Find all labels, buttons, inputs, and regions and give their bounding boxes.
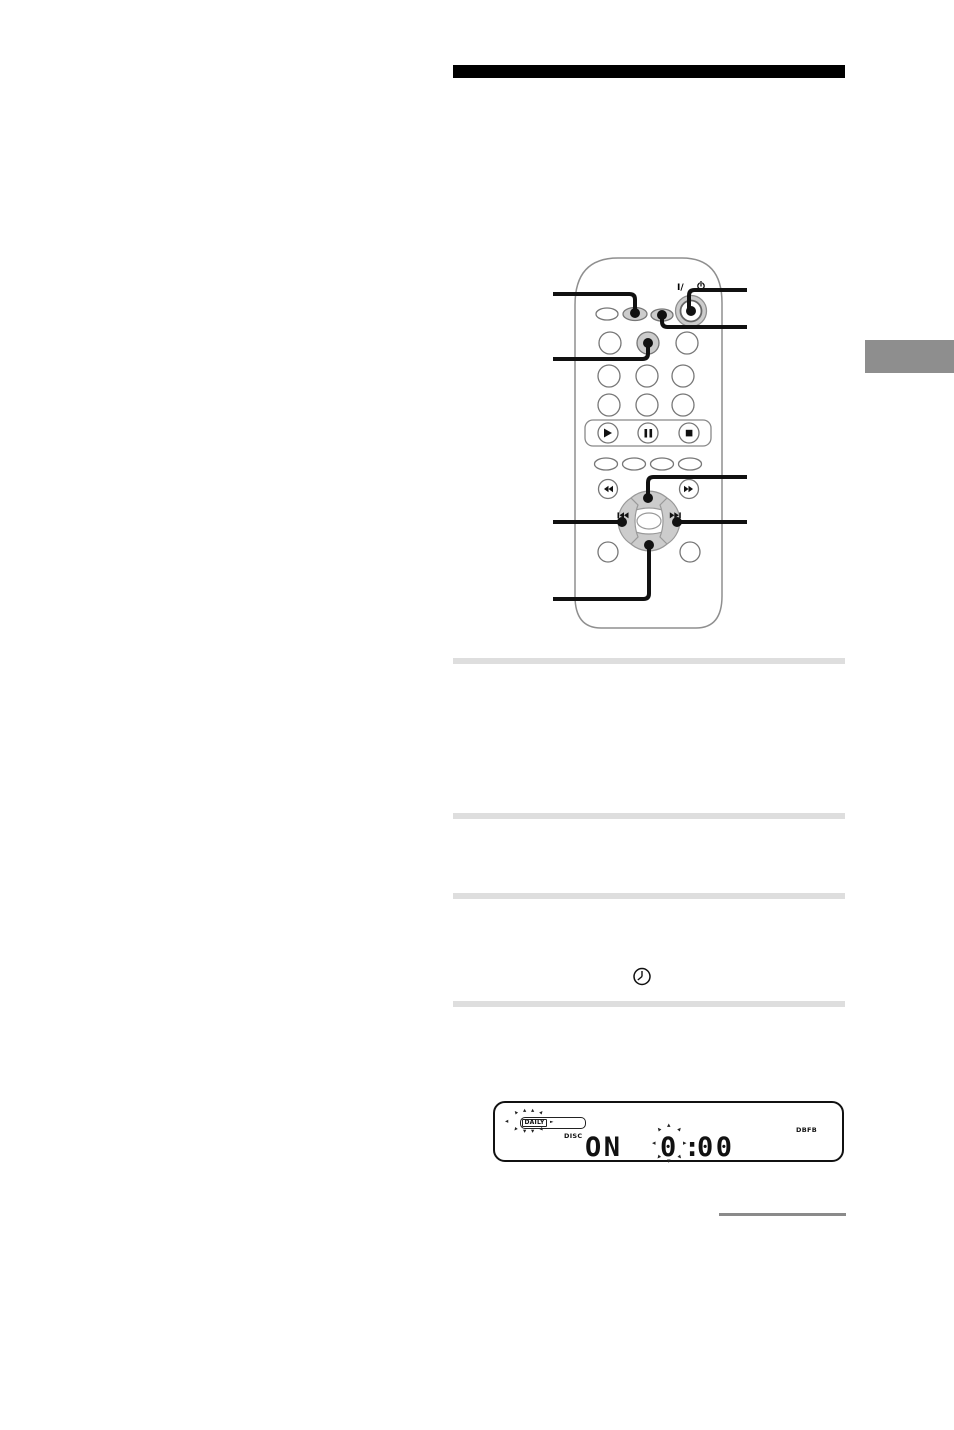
flash-ray: ▴: [676, 1126, 683, 1133]
section-divider: [453, 893, 845, 899]
flash-ray: ▾: [531, 1128, 534, 1134]
numeric-button: [676, 332, 698, 354]
flash-ray: ▴: [512, 1109, 518, 1116]
clock-icon: [632, 966, 652, 986]
dbfb-label: DBFB: [796, 1126, 817, 1134]
numeric-button: [636, 394, 658, 416]
flash-ray: ◂: [505, 1118, 508, 1124]
flash-ray: ▾: [512, 1126, 518, 1133]
flash-ray: ▴: [655, 1126, 662, 1133]
disc-label: DISC: [564, 1132, 582, 1140]
numeric-button: [598, 365, 620, 387]
function-button-1: [596, 308, 618, 320]
flash-ray: ◂: [652, 1140, 656, 1146]
remote-control-figure: I/: [545, 252, 755, 637]
daily-arrow-icon: ►: [550, 1120, 553, 1125]
numeric-button: [672, 394, 694, 416]
daily-label: DAILY: [522, 1119, 547, 1128]
mode-button-3: [651, 458, 674, 470]
lower-button-left: [598, 542, 618, 562]
manual-page: I/: [0, 0, 954, 1430]
daily-timer-indicator: DAILY ►: [520, 1117, 586, 1129]
display-on-text: ON: [585, 1134, 623, 1161]
flash-ray: ▴: [667, 1122, 671, 1128]
section-header-bar: [453, 65, 845, 78]
flash-ray: ▸: [683, 1140, 687, 1146]
power-label: I/: [677, 283, 684, 293]
flash-ray: ▴: [538, 1109, 544, 1116]
page-edge-tab: [865, 340, 954, 373]
stop-icon: [686, 430, 693, 437]
pause-button: [638, 423, 658, 443]
numeric-button: [599, 332, 621, 354]
lower-button-right: [680, 542, 700, 562]
enter-button: [637, 513, 661, 529]
numeric-button: [636, 365, 658, 387]
section-divider: [453, 658, 845, 664]
mode-button-4: [679, 458, 702, 470]
flash-ray: ▴: [523, 1107, 526, 1113]
flash-ray: ▾: [667, 1158, 671, 1164]
section-divider: [453, 813, 845, 819]
display-minute-digits: 00: [697, 1134, 735, 1161]
display-panel: DAILY ► ◂ ▴ ▴ ▴ ▴ ▾ ▾ ▾ ▾ DISC DBFB ON 0…: [493, 1101, 844, 1162]
continued-rule: [719, 1213, 846, 1216]
mode-button-1: [595, 458, 618, 470]
flash-ray: ▾: [523, 1128, 526, 1134]
mode-button-2: [623, 458, 646, 470]
section-divider: [453, 1001, 845, 1007]
flash-ray: ▴: [531, 1107, 534, 1113]
numeric-button: [672, 365, 694, 387]
numeric-button: [598, 394, 620, 416]
